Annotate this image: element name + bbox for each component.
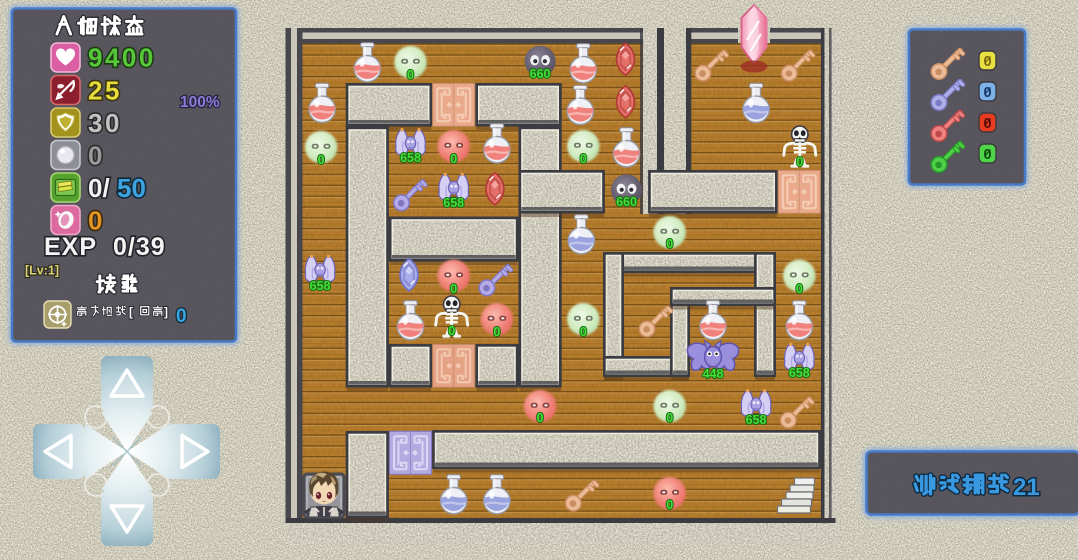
- svg-text:[Lv:1]: [Lv:1]: [25, 264, 59, 278]
- svg-text:0/: 0/: [88, 173, 110, 203]
- svg-text:0: 0: [796, 155, 803, 169]
- svg-text:660: 660: [530, 67, 551, 81]
- svg-text:0: 0: [318, 153, 325, 167]
- svg-text:30: 30: [88, 108, 122, 138]
- svg-text:EXP: EXP: [44, 233, 97, 261]
- svg-text:0: 0: [88, 141, 102, 171]
- svg-text:0: 0: [176, 306, 187, 327]
- svg-text:[: [: [129, 305, 133, 319]
- svg-text:]: ]: [164, 305, 168, 319]
- svg-text:0: 0: [448, 324, 455, 338]
- svg-text:0: 0: [450, 282, 457, 296]
- svg-text:0: 0: [537, 411, 544, 425]
- svg-text:658: 658: [443, 196, 464, 210]
- svg-text:0: 0: [796, 282, 803, 296]
- svg-text:0: 0: [407, 68, 414, 82]
- svg-text:0: 0: [666, 498, 673, 512]
- svg-text:0: 0: [666, 237, 673, 251]
- svg-text:25: 25: [88, 76, 122, 106]
- svg-text:100%: 100%: [180, 94, 220, 111]
- svg-text:0/39: 0/39: [113, 233, 166, 261]
- svg-text:50: 50: [117, 173, 146, 203]
- svg-text:0: 0: [580, 152, 587, 166]
- svg-text:0: 0: [666, 411, 673, 425]
- svg-text:658: 658: [400, 151, 421, 165]
- svg-text:0: 0: [450, 152, 457, 166]
- svg-text:660: 660: [616, 195, 637, 209]
- svg-text:658: 658: [746, 413, 767, 427]
- svg-text:658: 658: [310, 279, 331, 293]
- svg-text:0: 0: [88, 206, 102, 236]
- svg-text:448: 448: [703, 367, 724, 381]
- svg-text:658: 658: [789, 366, 810, 380]
- svg-text:9400: 9400: [88, 43, 156, 73]
- svg-text:0: 0: [580, 325, 587, 339]
- svg-text:0: 0: [493, 325, 500, 339]
- svg-text:21: 21: [1013, 474, 1040, 501]
